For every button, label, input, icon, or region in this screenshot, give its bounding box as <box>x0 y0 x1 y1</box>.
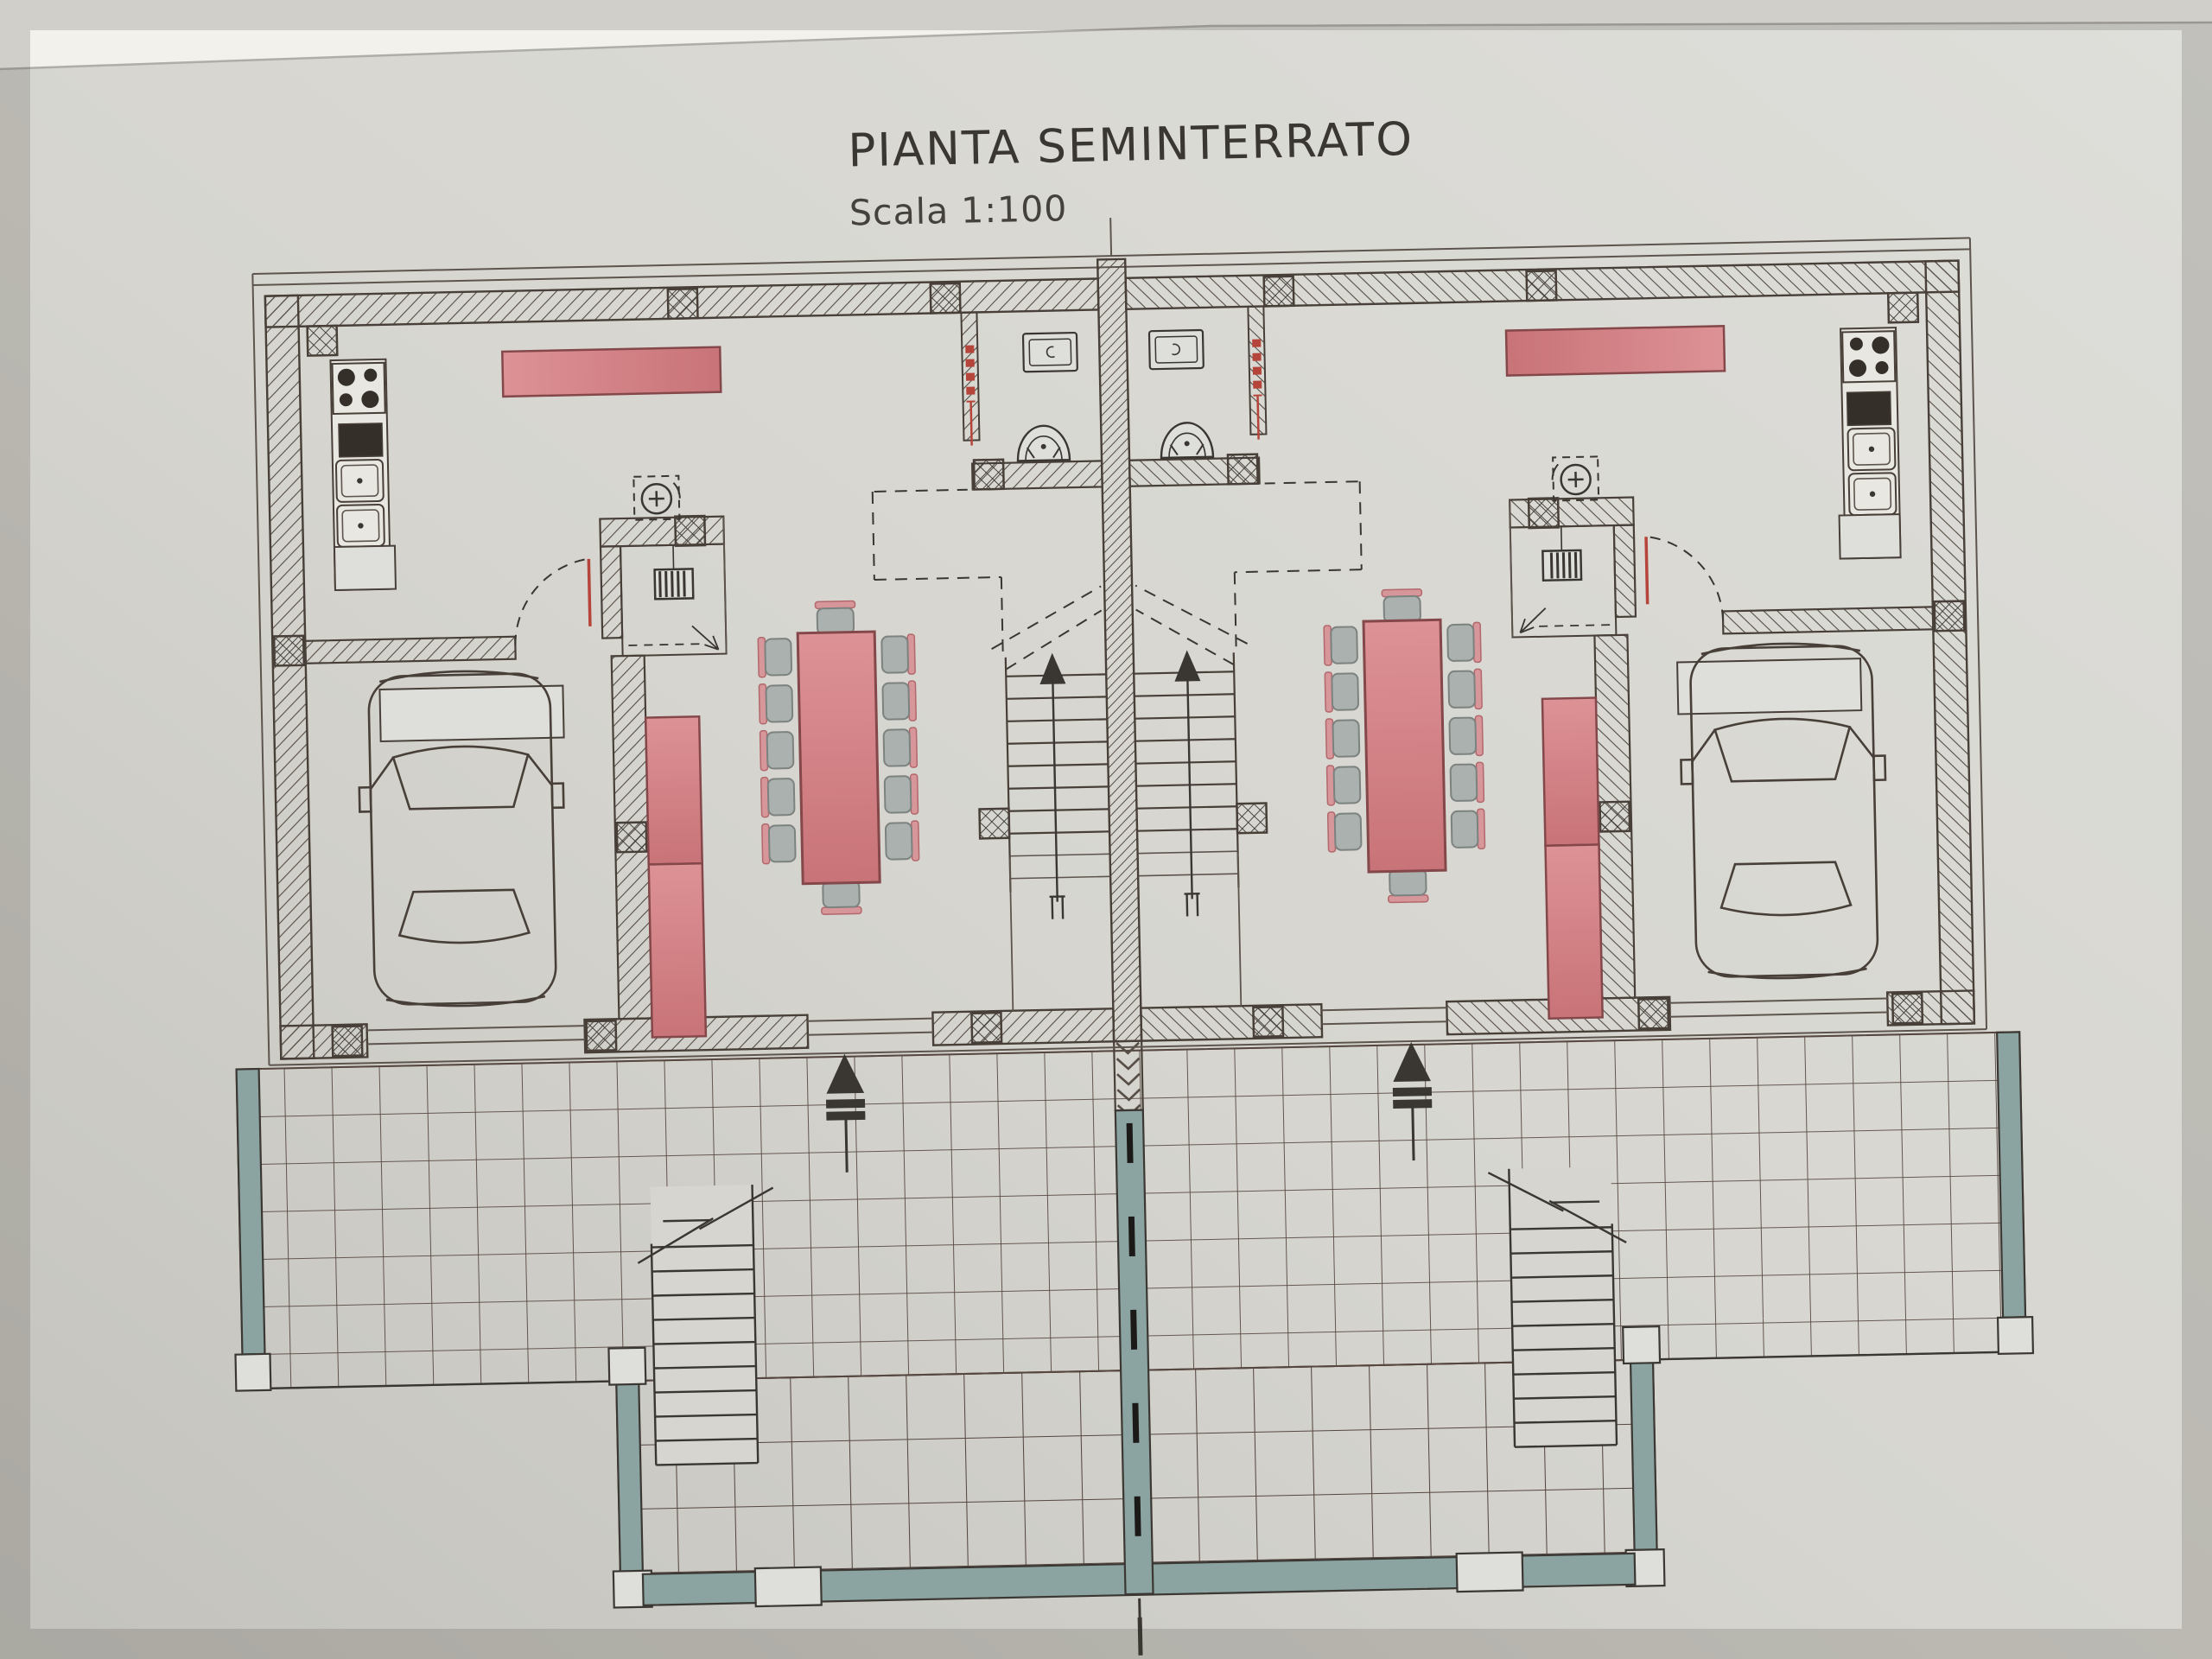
retaining-pier-left <box>236 1354 271 1391</box>
terrace-wall-left <box>616 1382 643 1573</box>
terrace-wall-right <box>1630 1361 1657 1551</box>
retaining-wall-left <box>237 1069 265 1354</box>
scale-label: Scala 1:100 <box>849 188 1067 233</box>
retaining-wall-right <box>1997 1032 2025 1317</box>
photographed-floor-plan: PIANTA SEMINTERRATO Scala 1:100 <box>0 0 2212 1659</box>
retaining-pier-right <box>1998 1317 2033 1354</box>
party-wall-stub <box>1114 1041 1143 1111</box>
